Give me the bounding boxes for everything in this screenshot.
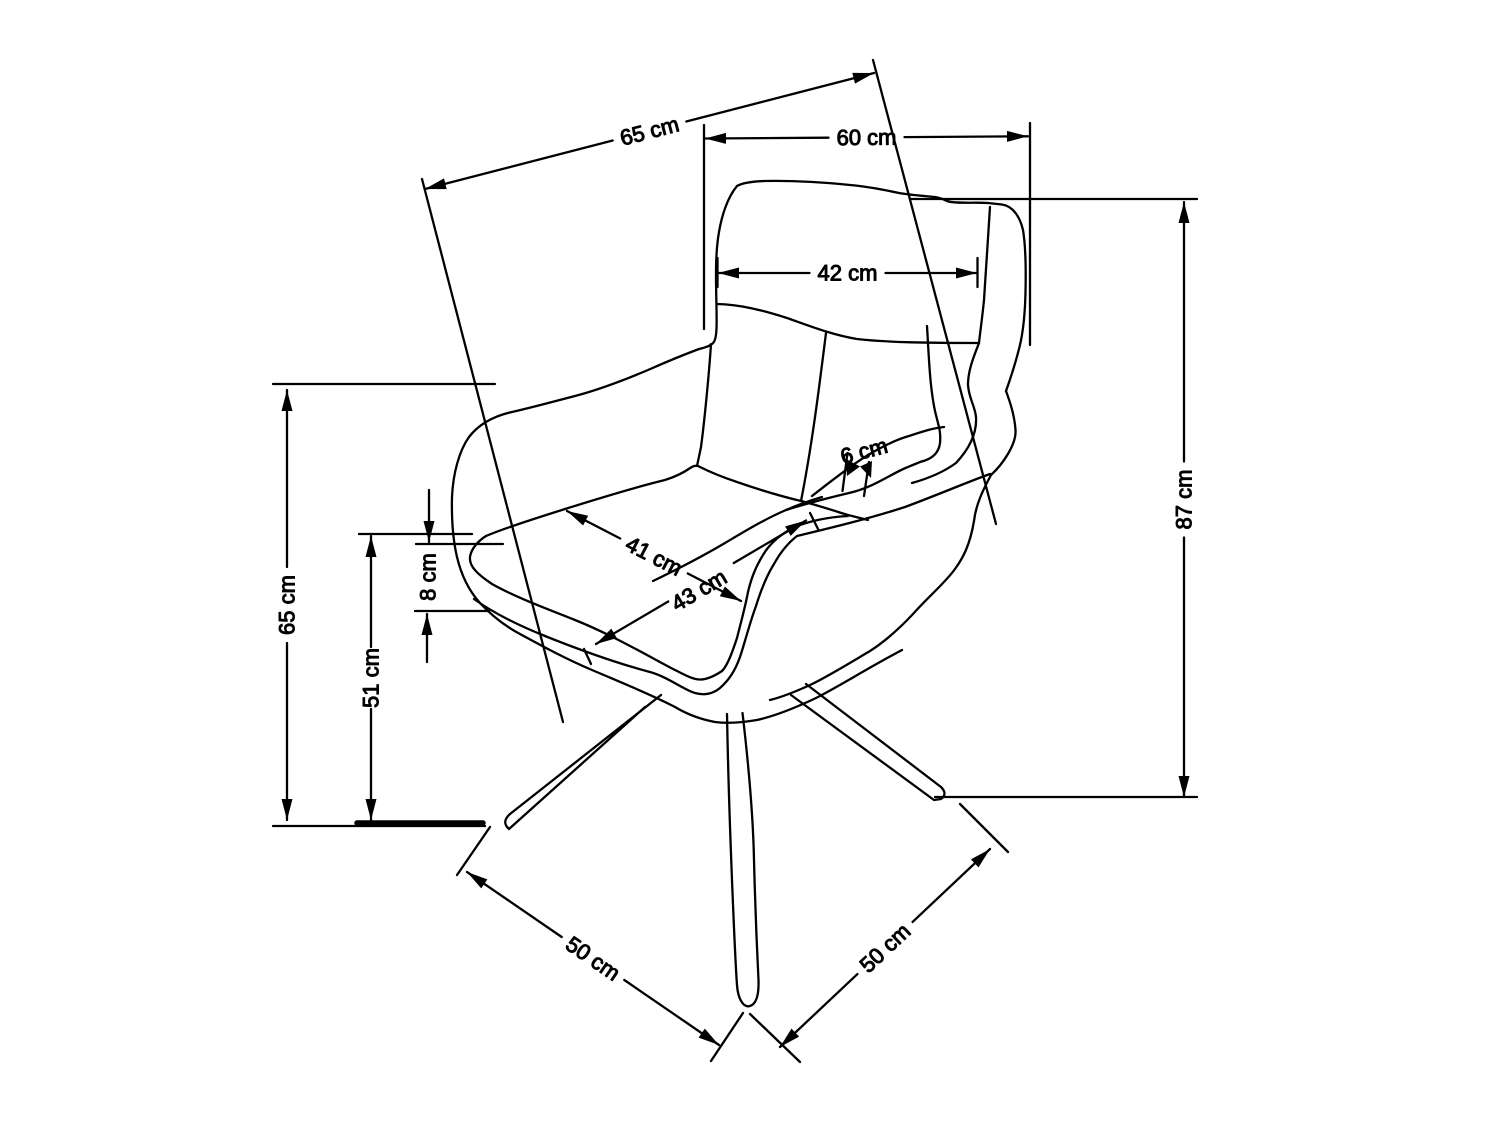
svg-text:8 cm: 8 cm (416, 553, 441, 601)
svg-text:42 cm: 42 cm (818, 261, 878, 286)
svg-text:87 cm: 87 cm (1172, 470, 1197, 530)
svg-text:65 cm: 65 cm (275, 575, 300, 635)
svg-text:51 cm: 51 cm (359, 648, 384, 708)
svg-text:60 cm: 60 cm (836, 125, 896, 150)
